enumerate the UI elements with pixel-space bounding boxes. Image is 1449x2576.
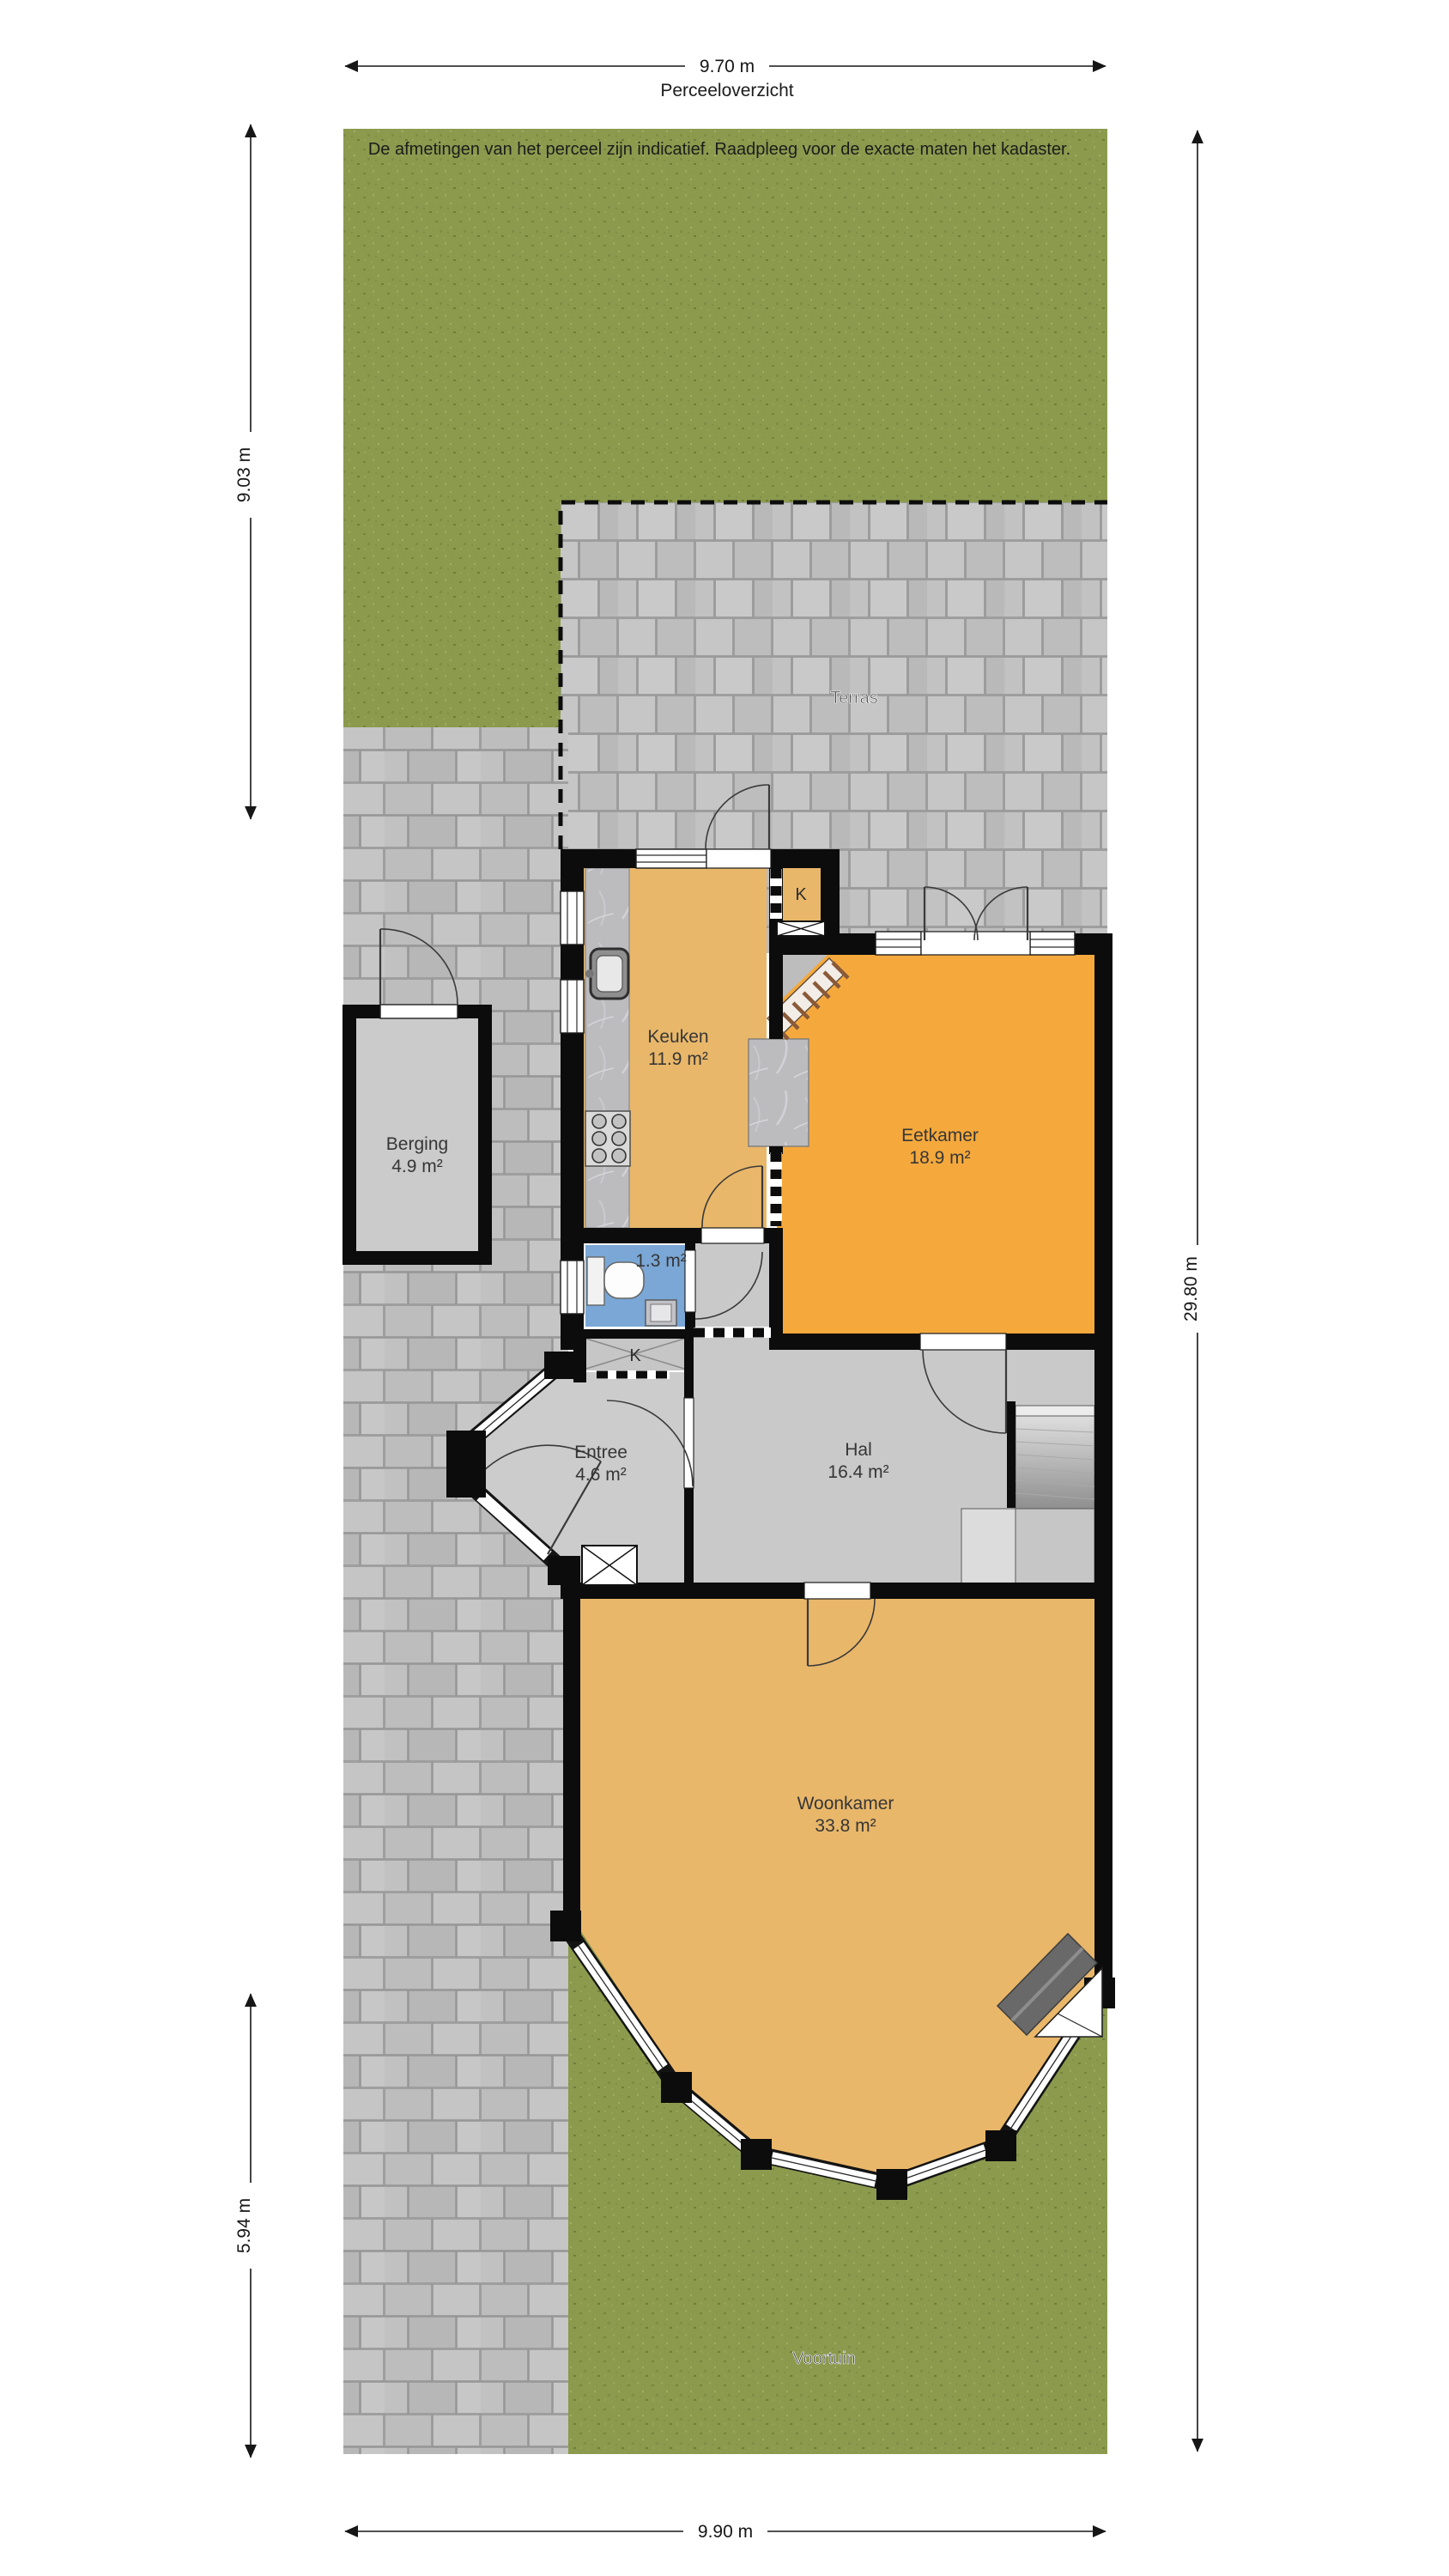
dimension-left-lower-value: 5.94 m xyxy=(234,2198,254,2253)
stair-landing-right xyxy=(1016,1509,1094,1589)
terrace-label: Terras xyxy=(830,689,878,708)
page-title: Perceeloverzicht xyxy=(660,81,793,100)
room-label-hal: Hal xyxy=(845,1440,872,1460)
berging-door-opening xyxy=(380,1005,458,1018)
room-label-berging: Berging xyxy=(386,1134,448,1154)
room-area-eetkamer: 18.9 m² xyxy=(909,1148,970,1168)
keuken-top-window xyxy=(636,849,706,868)
kitchen-counter xyxy=(585,868,629,1228)
stair-divider-wall xyxy=(1007,1401,1016,1508)
closet-lower-label: K xyxy=(629,1346,641,1365)
toilet-door-opening xyxy=(685,1250,695,1312)
dimension-left-upper-value: 9.03 m xyxy=(234,447,254,502)
room-area-keuken: 11.9 m² xyxy=(648,1049,708,1069)
dimension-right-value: 29.80 m xyxy=(1181,1256,1201,1321)
vestibule-floor xyxy=(694,1243,771,1327)
kitchen-island xyxy=(749,1039,809,1146)
back-garden-grass-left-strip xyxy=(343,502,561,727)
room-area-hal: 16.4 m² xyxy=(828,1462,888,1482)
floorplan-page: Terras Voortuin Berging 4.9 m² Keuken 11… xyxy=(0,0,1449,2576)
room-label-keuken: Keuken xyxy=(647,1027,708,1047)
room-area-berging: 4.9 m² xyxy=(391,1157,443,1176)
bay-pier xyxy=(544,1352,573,1379)
kitchen-faucet-icon xyxy=(585,969,594,978)
kitchen-sink-basin xyxy=(597,956,622,992)
back-garden-grass xyxy=(343,129,1107,502)
dimension-top-value: 9.70 m xyxy=(700,57,755,76)
room-label-woonkamer: Woonkamer xyxy=(797,1794,894,1814)
eetkamer-top-window-right xyxy=(1030,932,1075,955)
eetkamer-french-door-opening xyxy=(921,932,1030,955)
eetkamer-top-window-left xyxy=(876,932,921,955)
eetkamer-hal-door-opening xyxy=(920,1334,1006,1350)
disclaimer-text: De afmetingen van het perceel zijn indic… xyxy=(368,140,1070,159)
keuken-west-window-1 xyxy=(561,891,584,945)
toilet-west-window xyxy=(561,1261,584,1314)
keuken-door-opening xyxy=(701,1228,764,1243)
bay-pier xyxy=(548,1556,580,1585)
front-garden-label: Voortuin xyxy=(792,2349,855,2368)
woonkamer-door-opening xyxy=(804,1583,870,1599)
room-area-woonkamer: 33.8 m² xyxy=(815,1816,876,1836)
toilet-cistern xyxy=(587,1257,604,1305)
shaft-hatch-upper xyxy=(777,921,825,936)
porch-hatch-box xyxy=(582,1546,637,1585)
bay-pier xyxy=(446,1431,486,1498)
closet-upper-label: K xyxy=(795,885,807,904)
dimension-bottom-value: 9.90 m xyxy=(698,2522,753,2542)
room-label-entree: Entree xyxy=(574,1443,627,1462)
room-label-eetkamer: Eetkamer xyxy=(901,1126,979,1145)
keuken-west-window-2 xyxy=(561,980,584,1033)
keuken-terrace-door-opening xyxy=(706,849,771,868)
hand-basin-bowl xyxy=(651,1304,671,1321)
room-area-toilet: 1.3 m² xyxy=(635,1251,687,1271)
stair-landing-left xyxy=(961,1509,1016,1589)
room-area-entree: 4.6 m² xyxy=(575,1465,627,1485)
floorplan-canvas: Terras Voortuin Berging 4.9 m² Keuken 11… xyxy=(0,0,1449,2576)
